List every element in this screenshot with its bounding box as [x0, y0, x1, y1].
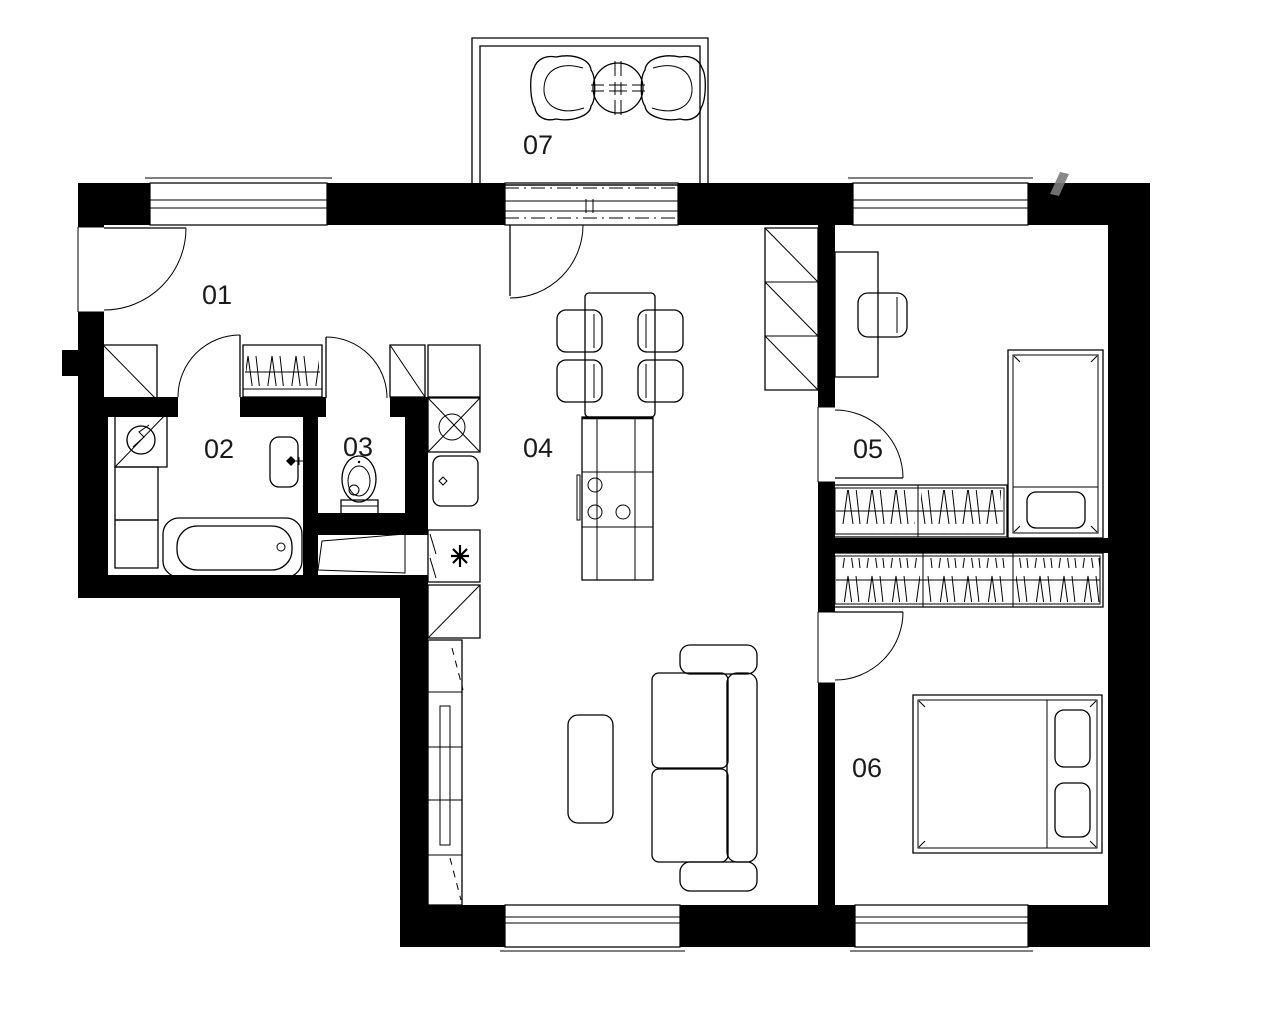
kitchen-island [577, 417, 653, 580]
balcony-chair [531, 56, 595, 120]
wall-segment [303, 397, 318, 577]
wall-segment [680, 905, 855, 947]
dining-chair [557, 360, 602, 402]
kitchen-corner-cabinet [428, 585, 480, 638]
kitchen-furniture [428, 228, 818, 905]
wall-segment [400, 905, 505, 947]
bathroom-cabinet [115, 467, 158, 520]
balcony [472, 38, 708, 185]
kitchen-sink [433, 456, 478, 506]
wall-segment [818, 683, 835, 905]
wall-segment [1108, 183, 1150, 947]
room06-furniture [832, 553, 1103, 853]
room-label-05: 05 [853, 434, 883, 464]
toilet [341, 456, 378, 517]
room-label-07: 07 [523, 130, 553, 160]
kitchen-cabinet [428, 345, 480, 397]
window [145, 178, 332, 225]
room-label-01: 01 [202, 280, 232, 310]
entrance-door [78, 227, 186, 312]
window [848, 178, 1033, 225]
bookshelf [765, 228, 818, 390]
washbasin [270, 437, 303, 487]
bathtub [163, 518, 302, 577]
single-bed [1008, 350, 1103, 538]
room05-furniture [832, 252, 1103, 538]
wall-segment [78, 410, 108, 598]
wall-segment [818, 225, 835, 407]
balcony-door-window [505, 183, 678, 225]
wall-segment [400, 575, 428, 947]
desk [835, 252, 878, 377]
bathroom-door [178, 335, 240, 397]
room06-door [818, 612, 903, 683]
bathroom-cabinet [115, 520, 158, 568]
wall-segment [78, 183, 104, 227]
sofa [652, 645, 757, 891]
wardrobe [832, 553, 1103, 607]
room-label-04: 04 [523, 433, 553, 463]
niche-shelf [318, 534, 405, 573]
window [500, 905, 685, 951]
kitchen-corner-unit [428, 398, 480, 452]
wall-segment [327, 183, 505, 225]
wc-door [326, 337, 387, 398]
desk-chair [858, 293, 907, 337]
floor-plan-drawing: 01 02 03 04 05 06 07 [0, 0, 1280, 1024]
hob-burner [588, 478, 602, 492]
floor-plan-page: 01 02 03 04 05 06 07 [0, 0, 1280, 1024]
coffee-table [568, 715, 613, 823]
room-label-02: 02 [204, 434, 234, 464]
dining-table [585, 293, 655, 417]
dining-chair [638, 360, 683, 402]
wall-segment [78, 575, 428, 598]
wardrobe [243, 345, 322, 397]
hob-burner [588, 505, 602, 519]
balcony-table [591, 61, 645, 115]
window [850, 905, 1033, 951]
tall-storage-unit [428, 640, 463, 905]
corner-cabinet [390, 345, 425, 397]
wardrobe [832, 485, 1007, 537]
wall-segment [303, 513, 428, 535]
dining-chair [638, 310, 683, 352]
room-label-03: 03 [343, 432, 373, 462]
hallway-furniture [103, 345, 425, 400]
balcony-chair [641, 56, 705, 120]
washing-machine [115, 413, 167, 467]
dining-chair [557, 310, 602, 352]
appliance-unit [428, 530, 480, 582]
wall-segment [62, 350, 78, 376]
wall-segment [678, 183, 853, 225]
double-bed [913, 695, 1102, 853]
room-label-06: 06 [852, 753, 882, 783]
wall-segment [835, 538, 1108, 553]
cabinet [103, 345, 157, 400]
balcony-door [510, 225, 583, 298]
hob-burner [616, 505, 630, 519]
